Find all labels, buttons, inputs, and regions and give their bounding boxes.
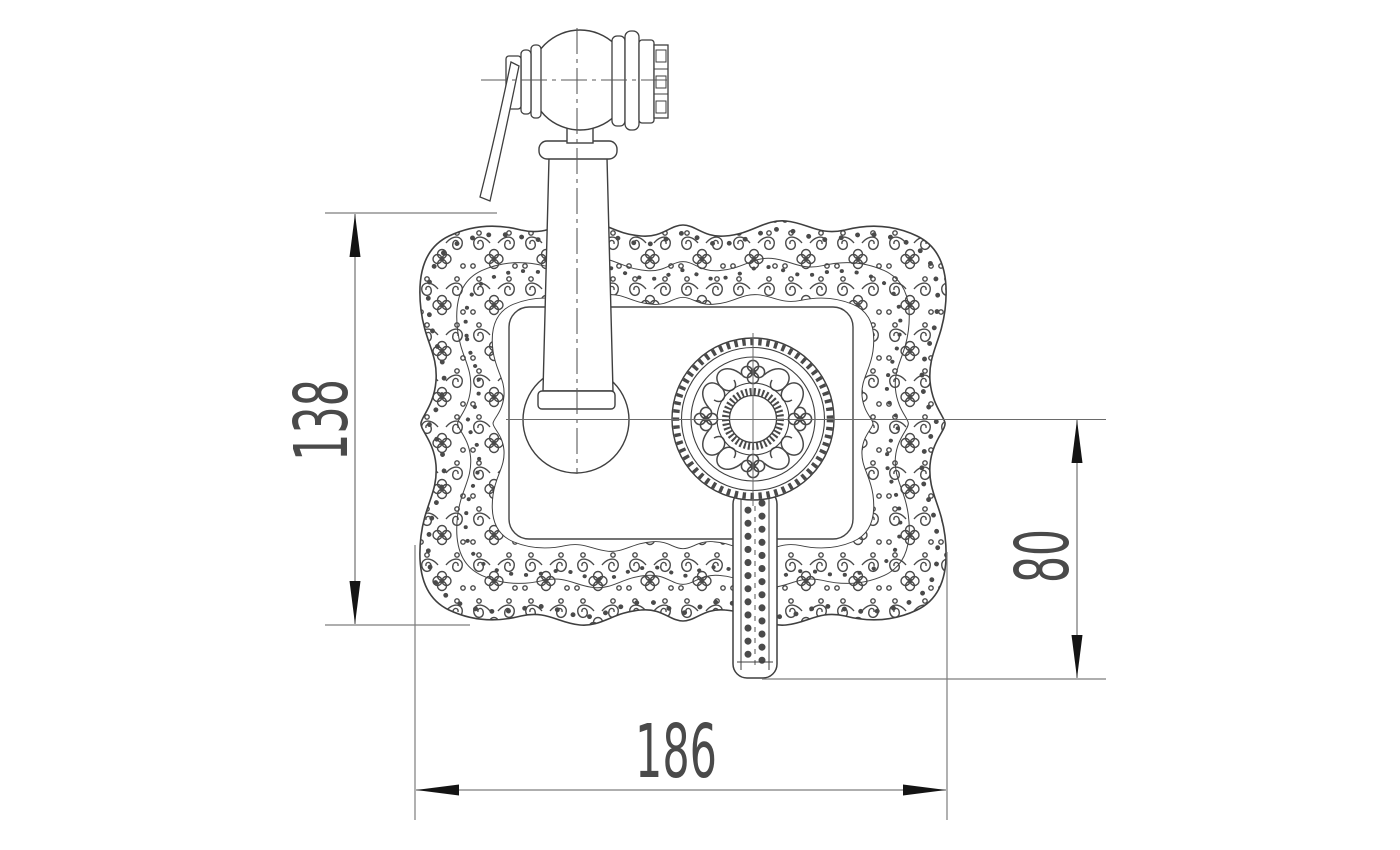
drawing-canvas: 138 80 186	[0, 0, 1400, 850]
arrow-up-icon	[350, 214, 361, 257]
technical-drawing: 138 80 186	[0, 0, 1400, 850]
nozzle-ring-1	[612, 36, 625, 126]
dim-label-138: 138	[279, 379, 365, 461]
arrow-up-icon	[1072, 420, 1083, 463]
arrow-left-icon	[416, 785, 459, 796]
valve-ring-1	[531, 45, 541, 118]
trigger-lever	[480, 62, 519, 201]
arrow-down-icon	[1072, 635, 1083, 678]
arrow-down-icon	[350, 581, 361, 624]
valve-ring-2	[521, 50, 531, 114]
arrow-right-icon	[903, 785, 946, 796]
nozzle-ring-3	[639, 40, 654, 123]
dim-label-80: 80	[1000, 529, 1086, 583]
hose-stub	[733, 490, 777, 678]
sprayer-handle	[543, 158, 613, 391]
dim-label-186: 186	[635, 709, 717, 795]
